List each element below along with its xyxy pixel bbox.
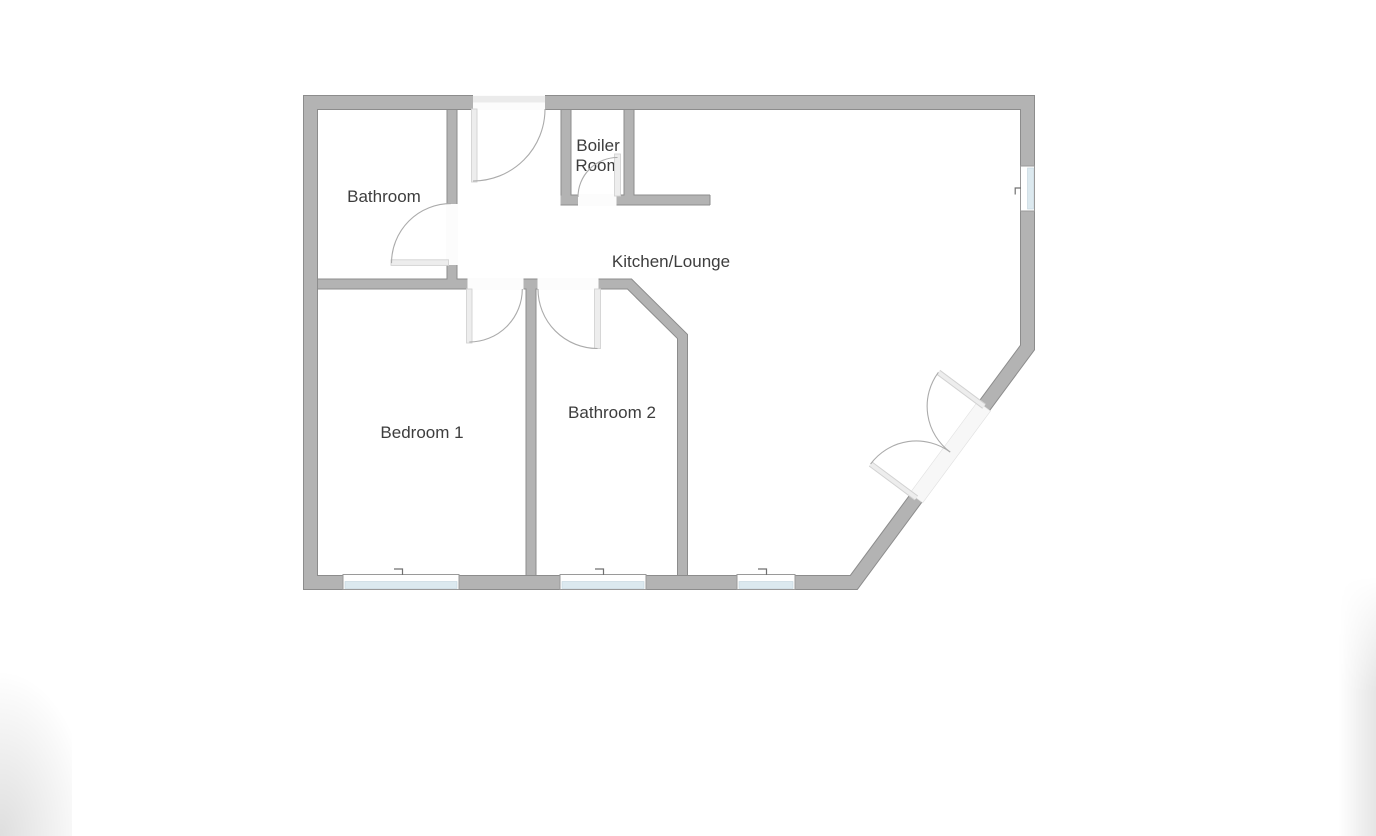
bathroom-door-arc <box>392 204 452 264</box>
middle-wall-and-bathroom2-right-wall <box>312 284 683 575</box>
window-open-direction-marks <box>394 188 1021 575</box>
entry-door-arc <box>473 109 545 181</box>
bathroom-2-door-leaf <box>595 289 601 349</box>
floor-plan: Bathroom Boiler Room Kitchen/Lounge Bedr… <box>0 0 1376 836</box>
bottom-window-bedroom-1 <box>343 575 459 590</box>
double-door-diagonal-opening <box>910 402 991 503</box>
bathroom-door <box>391 204 451 266</box>
boiler-room-door-opening <box>578 194 617 206</box>
bottom-window-bathroom-2 <box>560 575 646 590</box>
bathroom-2-door-opening <box>538 278 599 290</box>
bedroom-1-door-opening <box>468 278 524 290</box>
bathroom-door-leaf <box>391 260 449 266</box>
double-door-leaf-lower <box>871 464 917 498</box>
room-label-boiler-line1: Boiler <box>576 136 620 155</box>
entry-door-top <box>472 109 546 182</box>
bathroom-2-door <box>538 289 601 349</box>
bedroom-1-door-leaf <box>467 289 473 343</box>
bedroom-1-door-arc <box>469 289 522 342</box>
outer-wall-outline <box>311 103 1028 583</box>
outer-walls <box>311 103 1028 583</box>
double-door-arc-upper <box>927 372 950 452</box>
interior-walls <box>312 104 710 582</box>
bottom-window-kitchen <box>737 575 795 590</box>
room-label-bedroom-1: Bedroom 1 <box>380 423 463 442</box>
room-label-boiler-line2: Room <box>575 156 620 175</box>
floor-plan-canvas: Bathroom Boiler Room Kitchen/Lounge Bedr… <box>0 0 1376 836</box>
room-label-bathroom: Bathroom <box>347 187 421 206</box>
room-label-kitchen-lounge: Kitchen/Lounge <box>612 252 730 271</box>
bedroom-1-door <box>467 289 523 343</box>
right-window-kitchen <box>1021 166 1035 211</box>
bathroom-2-door-arc <box>538 289 598 349</box>
boiler-room-door-leaf <box>615 154 621 196</box>
double-door-leaf-upper <box>938 372 984 406</box>
room-label-bathroom-2: Bathroom 2 <box>568 403 656 422</box>
bathroom-door-opening <box>446 204 458 265</box>
entry-door-leaf <box>472 109 478 182</box>
